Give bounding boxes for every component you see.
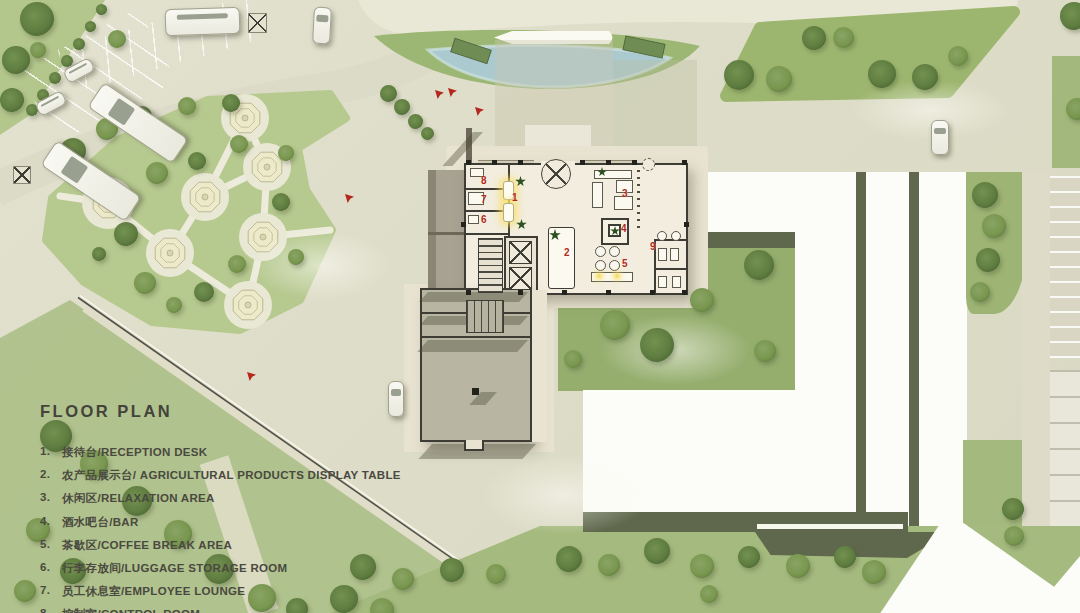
tree-icon [92,247,106,261]
tree-icon [1002,498,1024,520]
column [606,160,611,165]
roof-band [866,172,909,564]
stairs [466,300,504,333]
tree-icon [833,27,854,48]
tree-icon [114,222,138,246]
plan-title: FLOOR PLAN [40,402,470,421]
sink [657,231,667,241]
decorative-screen [637,170,640,232]
tree-icon [700,585,718,603]
tree-icon [982,214,1006,238]
tree-icon [912,64,938,90]
cafe-table [595,246,606,257]
tree-icon [598,554,620,576]
plan-marker-2: 2 [564,247,570,258]
tree-icon [188,152,206,170]
canopy-icon [13,166,31,184]
roof-shadow [856,172,866,564]
legend-item-text: 接待台/RECEPTION DESK [62,445,207,460]
column [682,160,687,165]
tree-icon [228,255,246,273]
legend-item: 7. 员工休息室/EMPLOYEE LOUNGE [40,584,470,599]
tree-icon [640,328,674,362]
legend-item: 6. 行李存放间/LUGGAGE STORAGE ROOM [40,561,470,576]
tree-icon [948,46,968,66]
tree-icon [724,60,754,90]
column [606,290,611,295]
partition [508,165,510,237]
elevator-icon [509,241,532,264]
tree-icon [970,282,990,302]
legend-item-text: 控制室/CONTROL ROOM [62,607,200,613]
tree-icon [108,30,126,48]
tree-icon [644,538,670,564]
legend-item: 5. 茶歇区/COFFEE BREAK AREA [40,538,470,553]
tree-icon [976,248,1000,272]
tree-icon [2,46,30,74]
wc-stall [658,276,667,288]
sofa [592,182,603,208]
tree-icon [786,554,810,578]
column [466,160,471,165]
column [562,290,567,295]
tree-icon [690,288,714,312]
column [461,222,466,227]
wc-stall [658,248,667,261]
plan-marker-8: 8 [481,175,487,186]
column [518,160,523,165]
tree-icon [30,42,46,58]
sink [671,231,681,241]
tree-icon [600,310,630,340]
plan-marker-5: 5 [622,258,628,269]
car [312,7,332,45]
legend-item-text: 酒水吧台/BAR [62,515,139,530]
cafe-table [609,246,620,257]
shrub-icon [73,38,85,50]
legend-item: 8. 控制室/CONTROL ROOM [40,607,470,613]
tree-icon [272,193,290,211]
tree-icon [834,546,856,568]
tree-icon [486,564,506,584]
west-annex-divider [428,232,466,235]
tree-icon [690,554,714,578]
shrub-icon [49,72,61,84]
column [472,388,479,395]
wc-stall [670,248,679,261]
tree-icon [194,282,214,302]
legend-item-text: 休闲区/RELAXATION AREA [62,491,215,506]
roof-band [919,172,967,574]
legend: FLOOR PLAN 1. 接待台/RECEPTION DESK 2. 农产品展… [40,402,470,613]
roof-band [795,172,857,516]
parking-stalls-right [1050,176,1080,358]
tree-icon [166,297,182,313]
legend-item-number: 3. [40,491,62,506]
canopy-icon [248,13,267,33]
tree-icon [146,162,168,184]
legend-item-text: 行李存放间/LUGGAGE STORAGE ROOM [62,561,287,576]
partition [422,336,530,338]
legend-item-number: 1. [40,445,62,460]
car [931,120,949,155]
legend-item-number: 8. [40,607,62,613]
partition [656,268,688,270]
column [466,290,471,295]
shrub-icon [421,127,434,140]
tree-icon [134,272,156,294]
legend-item-number: 5. [40,538,62,553]
tree-icon [222,94,240,112]
column [632,160,637,165]
revolving-door-icon [541,159,571,189]
stairs [478,238,503,293]
lamp-dot [597,274,601,278]
column [684,222,689,227]
tree-icon [766,66,792,92]
tree-icon [972,182,998,208]
roof-shadow [909,172,919,574]
legend-item-number: 4. [40,515,62,530]
plan-marker-3: 3 [622,188,628,199]
reception-desk [503,203,514,222]
shrub-icon [380,85,397,102]
tree-icon [744,250,774,280]
south-wing-corridor [532,290,547,442]
partition [464,210,508,212]
plan-marker-9: 9 [650,241,656,252]
site-plan-canvas: 1 2 3 4 5 6 7 8 9 FLOOR PLAN 1. 接待台/RECE… [0,0,1080,613]
plan-marker-6: 6 [481,214,487,225]
legend-item: 1. 接待台/RECEPTION DESK [40,445,470,460]
tree-icon [288,249,304,265]
column [492,160,497,165]
column [518,290,523,295]
tree-icon [868,60,896,88]
tree-icon [738,546,760,568]
legend-item: 2. 农产品展示台/ AGRICULTURAL PRODUCTS DISPLAY… [40,468,470,483]
wall-shadow [417,340,528,352]
tree-icon [1004,526,1024,546]
elevator-icon [509,267,532,290]
shrub-icon [394,99,410,115]
tree-icon [0,88,24,112]
column [650,290,655,295]
legend-item-text: 员工休息室/EMPLOYEE LOUNGE [62,584,245,599]
tree-icon [862,560,886,584]
furniture [468,215,479,224]
tree-icon [278,145,294,161]
tree-icon [14,580,36,602]
tree-icon [564,350,582,368]
display-table [548,227,575,289]
legend-item-number: 2. [40,468,62,483]
ceiling-rosette-icon [642,158,655,171]
tree-icon [1060,2,1080,30]
tree-icon [230,135,248,153]
shrub-icon [96,4,107,15]
legend-list: 1. 接待台/RECEPTION DESK 2. 农产品展示台/ AGRICUL… [40,445,470,613]
fog [480,455,650,535]
legend-item-number: 7. [40,584,62,599]
legend-item: 3. 休闲区/RELAXATION AREA [40,491,470,506]
column [682,290,687,295]
legend-item-text: 农产品展示台/ AGRICULTURAL PRODUCTS DISPLAY TA… [62,468,401,483]
fog [250,230,390,300]
partition [464,233,508,235]
tree-icon [754,340,776,362]
legend-item-text: 茶歇区/COFFEE BREAK AREA [62,538,232,553]
wc-stall [672,276,681,288]
cafe-table [595,260,606,271]
legend-item-number: 6. [40,561,62,576]
lamp-dot [615,274,619,278]
tree-icon [802,26,826,50]
legend-item: 4. 酒水吧台/BAR [40,515,470,530]
path-line [757,524,903,529]
plan-marker-7: 7 [481,194,487,205]
column [580,160,585,165]
cafe-table [609,260,620,271]
shrub-icon [85,21,96,32]
parking-panel-right [1050,370,1080,550]
plan-marker-1: 1 [512,192,518,203]
shrub-icon [408,114,423,129]
partition [464,188,508,190]
tree-icon [556,546,582,572]
plan-marker-4: 4 [621,223,627,234]
bus [165,7,241,37]
tree-icon [178,97,196,115]
tree-icon [20,2,54,36]
